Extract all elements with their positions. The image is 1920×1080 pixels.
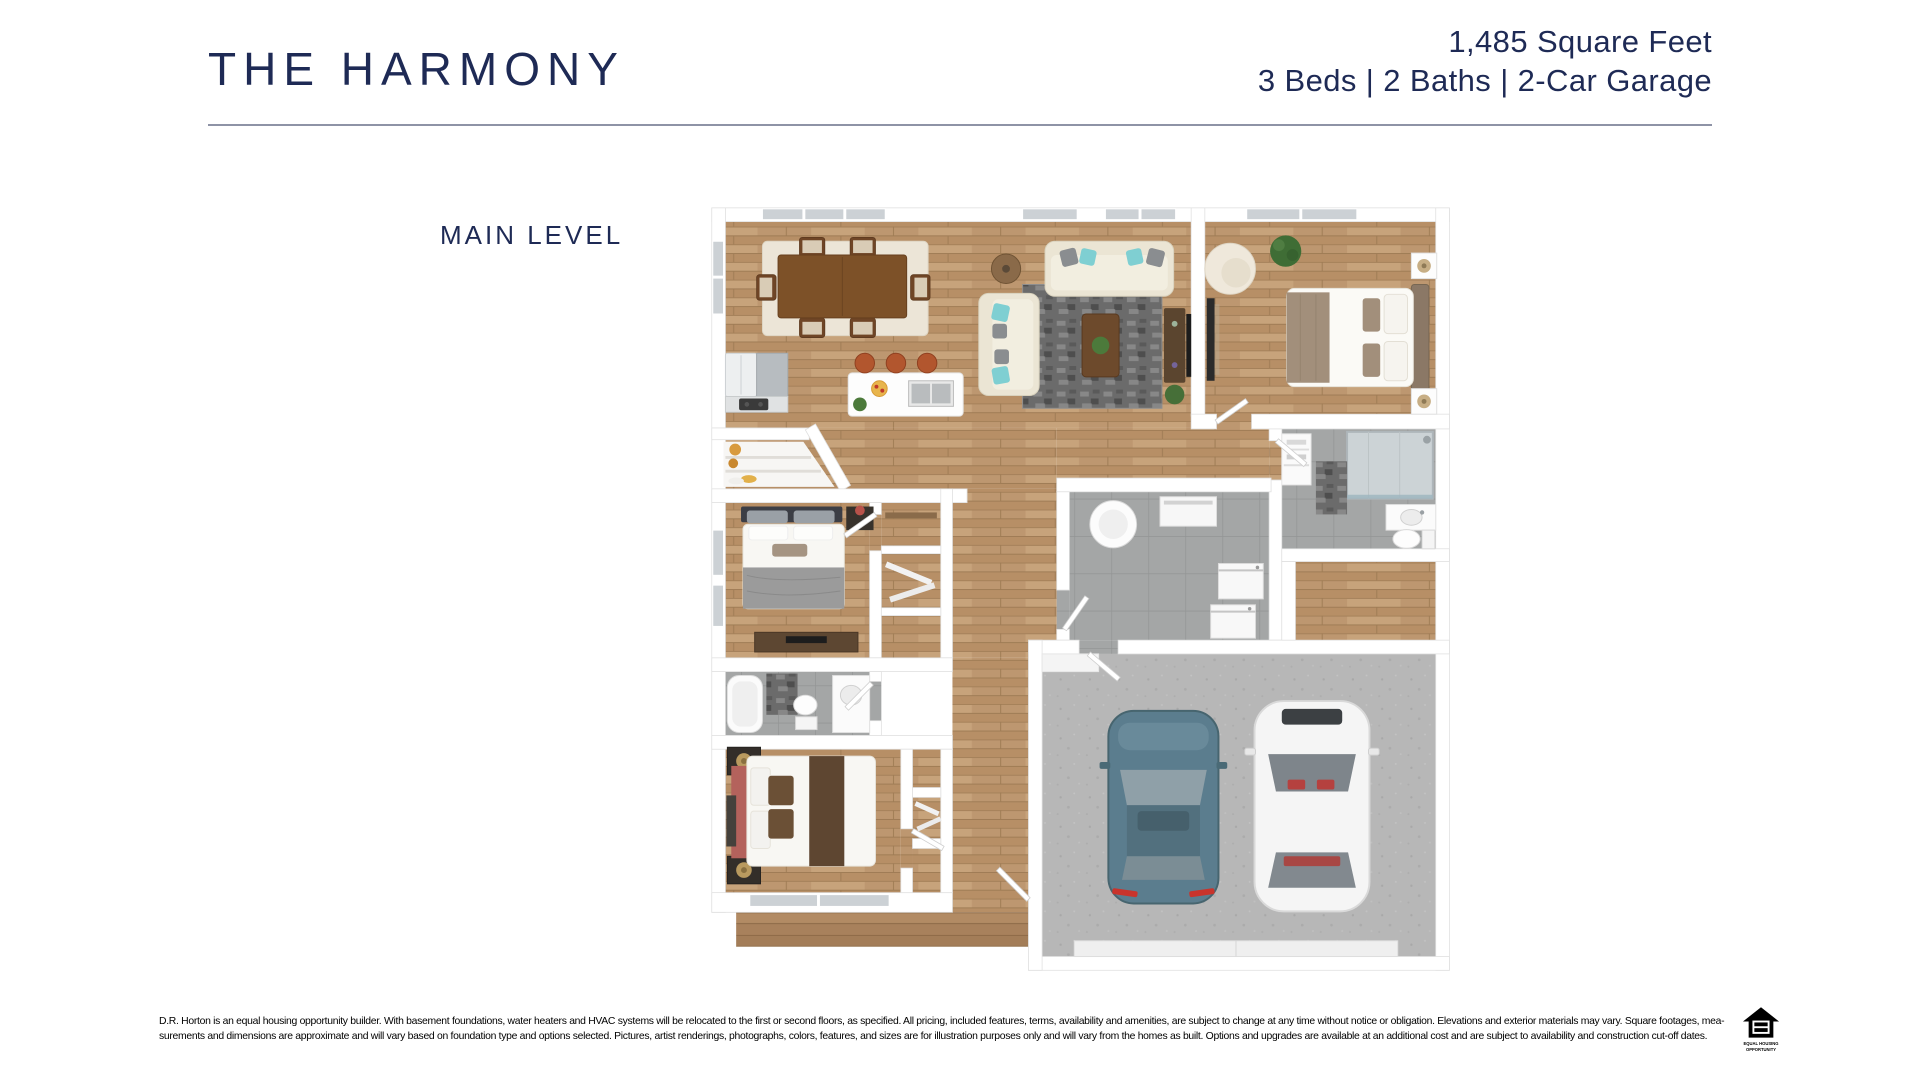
equal-housing-logo: EQUAL HOUSING OPPORTUNITY (1742, 1006, 1780, 1061)
divider-rule (208, 124, 1712, 126)
page-title: THE HARMONY (208, 42, 625, 96)
toilet (1393, 530, 1420, 549)
dining-window (762, 209, 885, 220)
table-plant (1092, 337, 1110, 355)
bread (729, 444, 741, 456)
shower-glass (1347, 495, 1433, 499)
floorplan-sheet: THE HARMONY 1,485 Square Feet 3 Beds | 2… (0, 0, 1920, 1080)
toilet (794, 695, 817, 715)
toilet-tank (1422, 530, 1435, 549)
floorplan-rendering (704, 200, 1464, 986)
bath-rug (766, 674, 797, 715)
level-label: MAIN LEVEL (440, 220, 623, 251)
closet-shelf (885, 512, 937, 518)
porch-floor (736, 912, 1028, 946)
dark-mat (726, 795, 736, 846)
car-white (1245, 701, 1379, 911)
sofa-vertical (979, 293, 1039, 395)
sofa-horizontal (1045, 241, 1174, 296)
dresser-tv (786, 636, 827, 643)
floor-plant (1165, 385, 1184, 405)
disclaimer: D.R. Horton is an equal housing opportun… (159, 1015, 1737, 1044)
food-plate (872, 381, 888, 397)
sunroof (1282, 709, 1342, 725)
disclaimer-line-2: surements and dimensions are approximate… (159, 1030, 1737, 1045)
entry-floor (952, 658, 1028, 912)
bar-stools (855, 353, 937, 373)
svg-text:EQUAL HOUSING: EQUAL HOUSING (1743, 1041, 1778, 1046)
floorplan-svg (704, 200, 1464, 986)
living-room (979, 241, 1191, 408)
bedroom2-window-1 (713, 530, 724, 575)
sink (1401, 509, 1422, 525)
island-plant (853, 397, 867, 411)
spec-square-feet: 1,485 Square Feet (1258, 22, 1712, 61)
garage-floor (1042, 654, 1436, 957)
gray-throw (743, 567, 844, 608)
dining-set (757, 237, 930, 337)
accent-pillow (772, 544, 807, 557)
television (1186, 314, 1191, 377)
plan-specs: 1,485 Square Feet 3 Beds | 2 Baths | 2-C… (1258, 22, 1712, 100)
walkin-closet-floor (1295, 562, 1435, 641)
car-blue (1100, 711, 1228, 904)
disclaimer-line-1: D.R. Horton is an equal housing opportun… (159, 1015, 1737, 1030)
brown-runner (809, 756, 844, 866)
living-window-1 (1023, 209, 1078, 220)
headboard (1411, 284, 1429, 390)
spec-beds-baths-garage: 3 Beds | 2 Baths | 2-Car Garage (1258, 61, 1712, 100)
svg-text:OPPORTUNITY: OPPORTUNITY (1746, 1047, 1776, 1052)
bath-rug (1316, 461, 1347, 514)
tv-console (1164, 308, 1185, 383)
equal-housing-icon: EQUAL HOUSING OPPORTUNITY (1742, 1006, 1780, 1056)
shower (1347, 432, 1433, 499)
toilet-tank (796, 717, 817, 730)
flowers (855, 506, 865, 516)
hallway-floor (952, 489, 1056, 658)
wall-tv (1207, 298, 1215, 381)
shower-head (1423, 436, 1431, 444)
bedroom2-window-2 (713, 585, 724, 626)
cooktop (739, 398, 768, 410)
cabinet (757, 353, 788, 396)
